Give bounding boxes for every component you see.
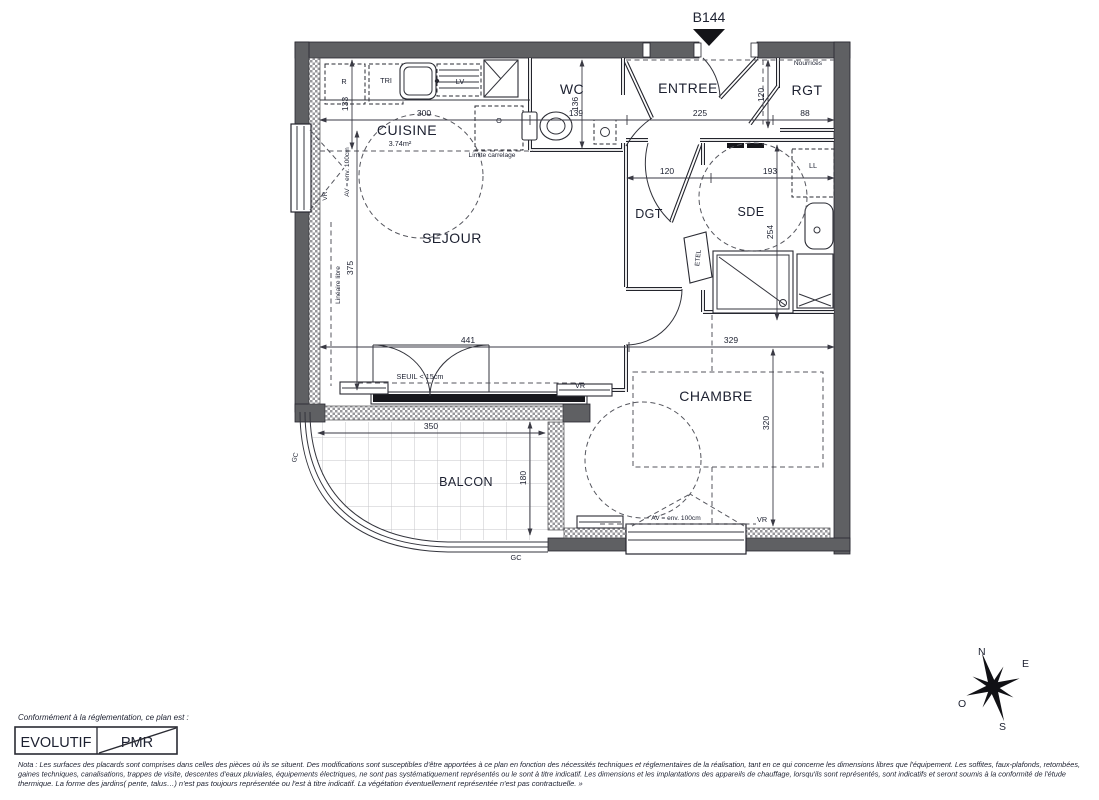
dim-chambre-width: 329 — [724, 335, 738, 345]
door-jamb — [751, 43, 758, 57]
door-jamb — [694, 43, 701, 57]
dim-entree-width: 225 — [693, 108, 707, 118]
nota-line-2: gaines techniques, canalisations, trappe… — [18, 770, 1066, 779]
compass-rose: N E O S — [955, 644, 1031, 733]
vr-label: VR — [757, 515, 767, 524]
oven-label: O — [496, 116, 502, 125]
gc-label: GC — [291, 452, 300, 464]
nota-line-3: thermique. La forme des jardins( pente, … — [18, 779, 583, 788]
floor-plan-page: B144 — [0, 0, 1099, 800]
washer-label: LL — [809, 161, 817, 170]
av-label: AV = env. 100cm — [651, 515, 701, 522]
compass-south-label: S — [999, 721, 1006, 733]
floor-plan-drawing: B144 — [0, 0, 1099, 800]
radiator-symbol — [340, 382, 388, 394]
tri-label: TRI — [380, 76, 392, 85]
compass-west-label: O — [958, 698, 966, 710]
room-sde: SDE — [738, 205, 765, 219]
dim-sde-width: 193 — [763, 166, 777, 176]
dim-dgt-width: 120 — [660, 166, 674, 176]
nota-line-1: Nota : Les surfaces des placards sont co… — [18, 760, 1080, 769]
conformity-caption: Conformément à la réglementation, ce pla… — [18, 713, 189, 722]
nota-text: Nota : Les surfaces des placards sont co… — [18, 760, 1080, 788]
room-sejour: SEJOUR — [422, 230, 482, 246]
sink-symbol — [400, 63, 439, 99]
dim-balcon-width: 350 — [424, 421, 438, 431]
room-cuisine-area: 3.74m² — [389, 139, 412, 148]
evolutif-label: EVOLUTIF — [21, 735, 92, 751]
conformity-legend: Conformément à la réglementation, ce pla… — [15, 713, 189, 754]
accessibility-circle — [699, 143, 807, 251]
room-balcon: BALCON — [439, 475, 493, 489]
door-jamb — [643, 43, 650, 57]
oven-symbol — [475, 106, 523, 150]
dim-rgt-depth: 120 — [756, 88, 766, 102]
dim-cuisine-width: 300 — [417, 108, 431, 118]
dim-rgt-width: 88 — [800, 108, 810, 118]
room-rgt: RGT — [791, 82, 822, 98]
limite-carrelage-label: Limite carrelage — [469, 152, 516, 159]
french-door — [373, 345, 489, 396]
radiator-symbol — [577, 516, 623, 528]
gc-label: GC — [511, 553, 522, 562]
vr-label: VR — [575, 381, 585, 390]
room-cuisine: CUISINE — [377, 122, 437, 138]
wc-basin-symbol — [594, 120, 616, 144]
room-nourrices: Nourrices — [794, 60, 823, 67]
accessibility-circle — [585, 402, 701, 518]
lineaire-libre-label: Linéaire libre — [335, 266, 342, 304]
dim-wc-depth: 136 — [570, 97, 580, 111]
unit-label: B144 — [693, 9, 726, 25]
vanity-symbol — [797, 254, 833, 308]
duct-symbol — [484, 60, 518, 97]
av-label: AV = env. 100cm — [344, 147, 351, 197]
fridge-label: R — [341, 77, 346, 86]
room-chambre: CHAMBRE — [679, 388, 753, 404]
shower-symbol — [713, 251, 793, 313]
shelf-symbol — [747, 143, 764, 148]
bed-outline — [633, 372, 823, 467]
vr-label: VR — [322, 191, 329, 200]
compass-north-label: N — [978, 646, 986, 658]
sde-fixtures: LL ETEL — [684, 143, 834, 313]
dim-sejour-width: 441 — [461, 335, 475, 345]
seuil-label: SEUIL < 15cm — [397, 372, 444, 381]
unit-marker: B144 — [693, 9, 726, 46]
dim-kitchen-depth: 133 — [340, 97, 350, 111]
chambre-window — [626, 524, 746, 554]
etel-closet: ETEL — [684, 232, 712, 283]
dim-sejour-depth: 375 — [345, 261, 355, 275]
toilet-symbol — [522, 112, 572, 140]
dim-sde-depth: 254 — [765, 225, 775, 239]
compass-east-label: E — [1022, 658, 1029, 670]
room-dgt: DGT — [635, 207, 663, 221]
dim-chambre-depth: 320 — [761, 416, 771, 430]
dishwasher-label: LV — [456, 77, 465, 86]
kitchen-window — [291, 124, 311, 212]
room-entree: ENTREE — [658, 80, 718, 96]
sejour-bay-window — [371, 392, 587, 404]
washer-symbol — [792, 149, 834, 197]
washbasin-symbol — [805, 203, 833, 249]
room-wc: WC — [560, 81, 584, 97]
dim-balcon-depth: 180 — [518, 471, 528, 485]
